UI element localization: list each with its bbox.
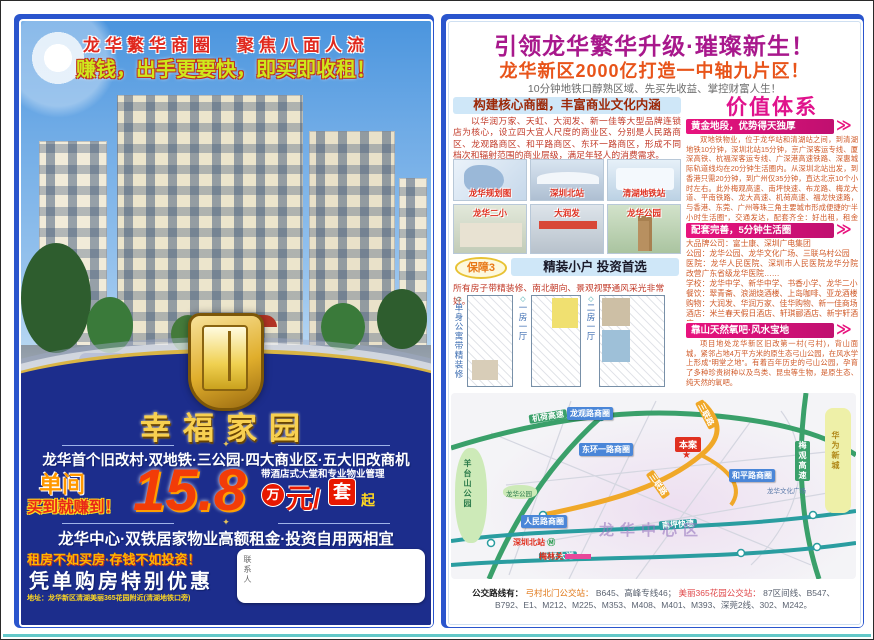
chevrons-icon: ≫: [836, 320, 852, 338]
left-headline-sub: 赚钱，出手更要快，即买即收租！: [21, 53, 431, 82]
bus-stop-1: 弓村北门公交站：: [525, 588, 593, 598]
ornament-icon: ✦: [222, 439, 230, 449]
map-station-north-label: 深圳北站 Ⓜ: [513, 537, 555, 548]
map-area-right-label: 华为新城: [830, 431, 841, 471]
photo-shenzhen-north: 深圳北站: [530, 159, 604, 201]
right-page-frame: 引领龙华繁华升级·璀璨新生！ 龙华新区2000亿打造一中轴九片区！ 10分钟地铁…: [441, 14, 864, 628]
value-section-2-body: 大品牌公司：富士康、深圳广电集团 公园：龙华公园、龙华文化广场、三联乌村公园 医…: [686, 239, 858, 321]
address-line: 地址：龙华新区清湖美丽365花园附近(清湖地铁口旁): [27, 593, 235, 603]
mart-sign-shape: [539, 221, 597, 229]
map-tag-renmin: 人民路商圈: [521, 515, 567, 528]
location-map: 机荷高速 梅观高速 南坪快速 北环大道 三联路 三联路 羊台山公园 龙华公园 华…: [451, 393, 856, 579]
room-type: 单间: [39, 465, 85, 499]
section-bar: 靠山天然氧吧·风水宝地: [686, 323, 834, 338]
value-system-title: 价值体系: [686, 91, 858, 121]
star-icon: ★: [682, 450, 691, 461]
price-tao-box: 套: [328, 478, 356, 506]
map-tag-longguan: 龙观路商圈: [567, 407, 613, 420]
photo-darunfa: 大润发: [530, 204, 604, 254]
map-district-label: 龙华中心区: [599, 519, 704, 540]
left-page-frame: 龙华繁华商圈 聚焦八面人流 赚钱，出手更要快，即买即收租！ 幸福家: [14, 14, 434, 628]
tree: [21, 243, 91, 353]
bus-stop-2: 美丽365花园公交站：: [679, 588, 761, 598]
guarantee-title: 精装小户 投资首选: [511, 258, 679, 276]
contact-label: 联系人: [242, 555, 253, 585]
price-qi: 起: [361, 490, 375, 510]
metro-icon: Ⓜ: [547, 537, 555, 548]
price-block: 单间 买到就赚到！ 15.8 带酒店式大堂和专业物业管理 万 元/ 套 起: [21, 465, 431, 521]
floorplan-1b1l: ◇ 一房一厅: [517, 295, 581, 391]
buy-slogan: 买到就赚到！: [27, 495, 120, 517]
bus-routes: 公交路线有： 弓村北门公交站： B645、高峰专线46； 美丽365花园公交站：…: [451, 584, 856, 618]
floorplan-label: 单身公寓带精装修: [453, 303, 465, 379]
floorplan-room: [602, 330, 630, 362]
photo-longhua-park: 龙华公园: [607, 204, 681, 254]
photo-longhua-school: 龙华二小: [453, 204, 527, 254]
photo-row-1: 龙华规划图 深圳北站 清湖地铁站: [453, 159, 681, 201]
value-section-1-header: 黄金地段，优势得天独厚 ≫: [686, 119, 858, 134]
ornament-icon: ✦: [222, 517, 230, 527]
photo-caption: 龙华规划图: [454, 187, 526, 199]
pagoda-shape: [638, 215, 652, 251]
map-highway-right-label: 梅观高速: [797, 441, 808, 481]
bus-routes-1: B645、高峰专线46；: [596, 588, 676, 598]
contact-write-in-box: 联系人: [237, 549, 425, 603]
floorplan-label: 二房一厅: [585, 303, 597, 341]
floorplan-drawing: [467, 295, 513, 387]
section-bar: 黄金地段，优势得天独厚: [686, 119, 834, 134]
diamond-icon: ◇: [456, 295, 461, 303]
school-wall-shape: [460, 223, 522, 247]
map-park-left-label: 羊台山公园: [462, 459, 473, 509]
floorplan-row: ◇ 单身公寓带精装修 ◇ 一房一厅: [453, 295, 681, 391]
floorplan-drawing: [531, 295, 581, 387]
photo-caption: 清湖地铁站: [608, 187, 680, 199]
floorplan-2b1l: ◇ 二房一厅: [585, 295, 665, 391]
photo-caption: 龙华二小: [454, 207, 526, 219]
value-section-1-body: 双地铁物业，位于龙华站和清湖站之间，到清湖地铁10分钟，深圳北站15分钟，京广深…: [686, 135, 858, 221]
benefit-line: 龙华中心·双铁居家物业高额租金·投资自用两相宜: [21, 527, 431, 549]
tree: [321, 303, 365, 351]
right-page: 引领龙华繁华升级·璀璨新生！ 龙华新区2000亿打造一中轴九片区！ 10分钟地铁…: [446, 19, 863, 627]
chevrons-icon: ≫: [836, 116, 852, 134]
floorplan-studio: ◇ 单身公寓带精装修: [453, 295, 513, 391]
price-unit: 元/: [286, 477, 321, 516]
price-amount: 15.8: [133, 457, 246, 524]
chevrons-icon: ≫: [836, 220, 852, 238]
value-section-3-body: 项目地处龙华新区旧改第一村(弓村)，背山面城，紧邻占地4万平方米的原生态弓山公园…: [686, 339, 858, 391]
guarantee-badge: 保障3: [455, 257, 507, 279]
floorplan-drawing: [599, 295, 665, 387]
diamond-icon: ◇: [520, 295, 525, 303]
flyer-sheet: 龙华繁华商圈 聚焦八面人流 赚钱，出手更要快，即买即收租！ 幸福家: [0, 0, 874, 640]
station-roof-shape: [537, 172, 599, 184]
photo-caption: 龙华公园: [608, 207, 680, 219]
gold-shield-emblem-icon: [188, 313, 264, 411]
scan-edge-line: [3, 634, 871, 637]
photo-qinghu-metro: 清湖地铁站: [607, 159, 681, 201]
floorplan-room: [552, 298, 578, 328]
price-wan-circle: 万: [261, 483, 285, 507]
map-plaza-label: 龙华文化广场: [767, 485, 806, 495]
photo-longhua-plan: 龙华规划图: [453, 159, 527, 201]
photo-caption: 大润发: [531, 207, 603, 219]
commerce-title: 构建核心商圈，丰富商业文化内涵: [453, 97, 681, 114]
tree: [377, 289, 427, 349]
floorplan-room: [602, 298, 630, 326]
bus-prefix: 公交路线有：: [472, 588, 523, 598]
value-section-2-header: 配套完善，5分钟生活圈 ≫: [686, 223, 858, 238]
floorplan-room: [472, 360, 498, 380]
offer-line: 凭单购房特别优惠: [29, 565, 241, 594]
floorplan-label: 一房一厅: [517, 303, 529, 341]
commerce-body: 以华润万家、天虹、大润发、新一佳等大型品牌连锁店为核心，设立四大宜人尺度的商业区…: [453, 116, 681, 161]
photo-row-2: 龙华二小 大润发 龙华公园: [453, 204, 681, 254]
map-tag-donghuan: 东环一路商圈: [579, 443, 633, 456]
value-section-3-header: 靠山天然氧吧·风水宝地 ≫: [686, 323, 858, 338]
photo-caption: 深圳北站: [531, 187, 603, 199]
diamond-icon: ◇: [588, 295, 593, 303]
checkpoint-bar: [565, 554, 591, 559]
map-park-small-label: 龙华公园: [506, 488, 532, 498]
map-tag-heping: 和平路商圈: [729, 469, 775, 482]
tree: [87, 297, 133, 353]
left-page: 龙华繁华商圈 聚焦八面人流 赚钱，出手更要快，即买即收租！ 幸福家: [19, 19, 433, 627]
section-bar: 配套完善，5分钟生活圈: [686, 223, 834, 238]
map-checkpoint-label: 梅林关: [539, 551, 591, 562]
